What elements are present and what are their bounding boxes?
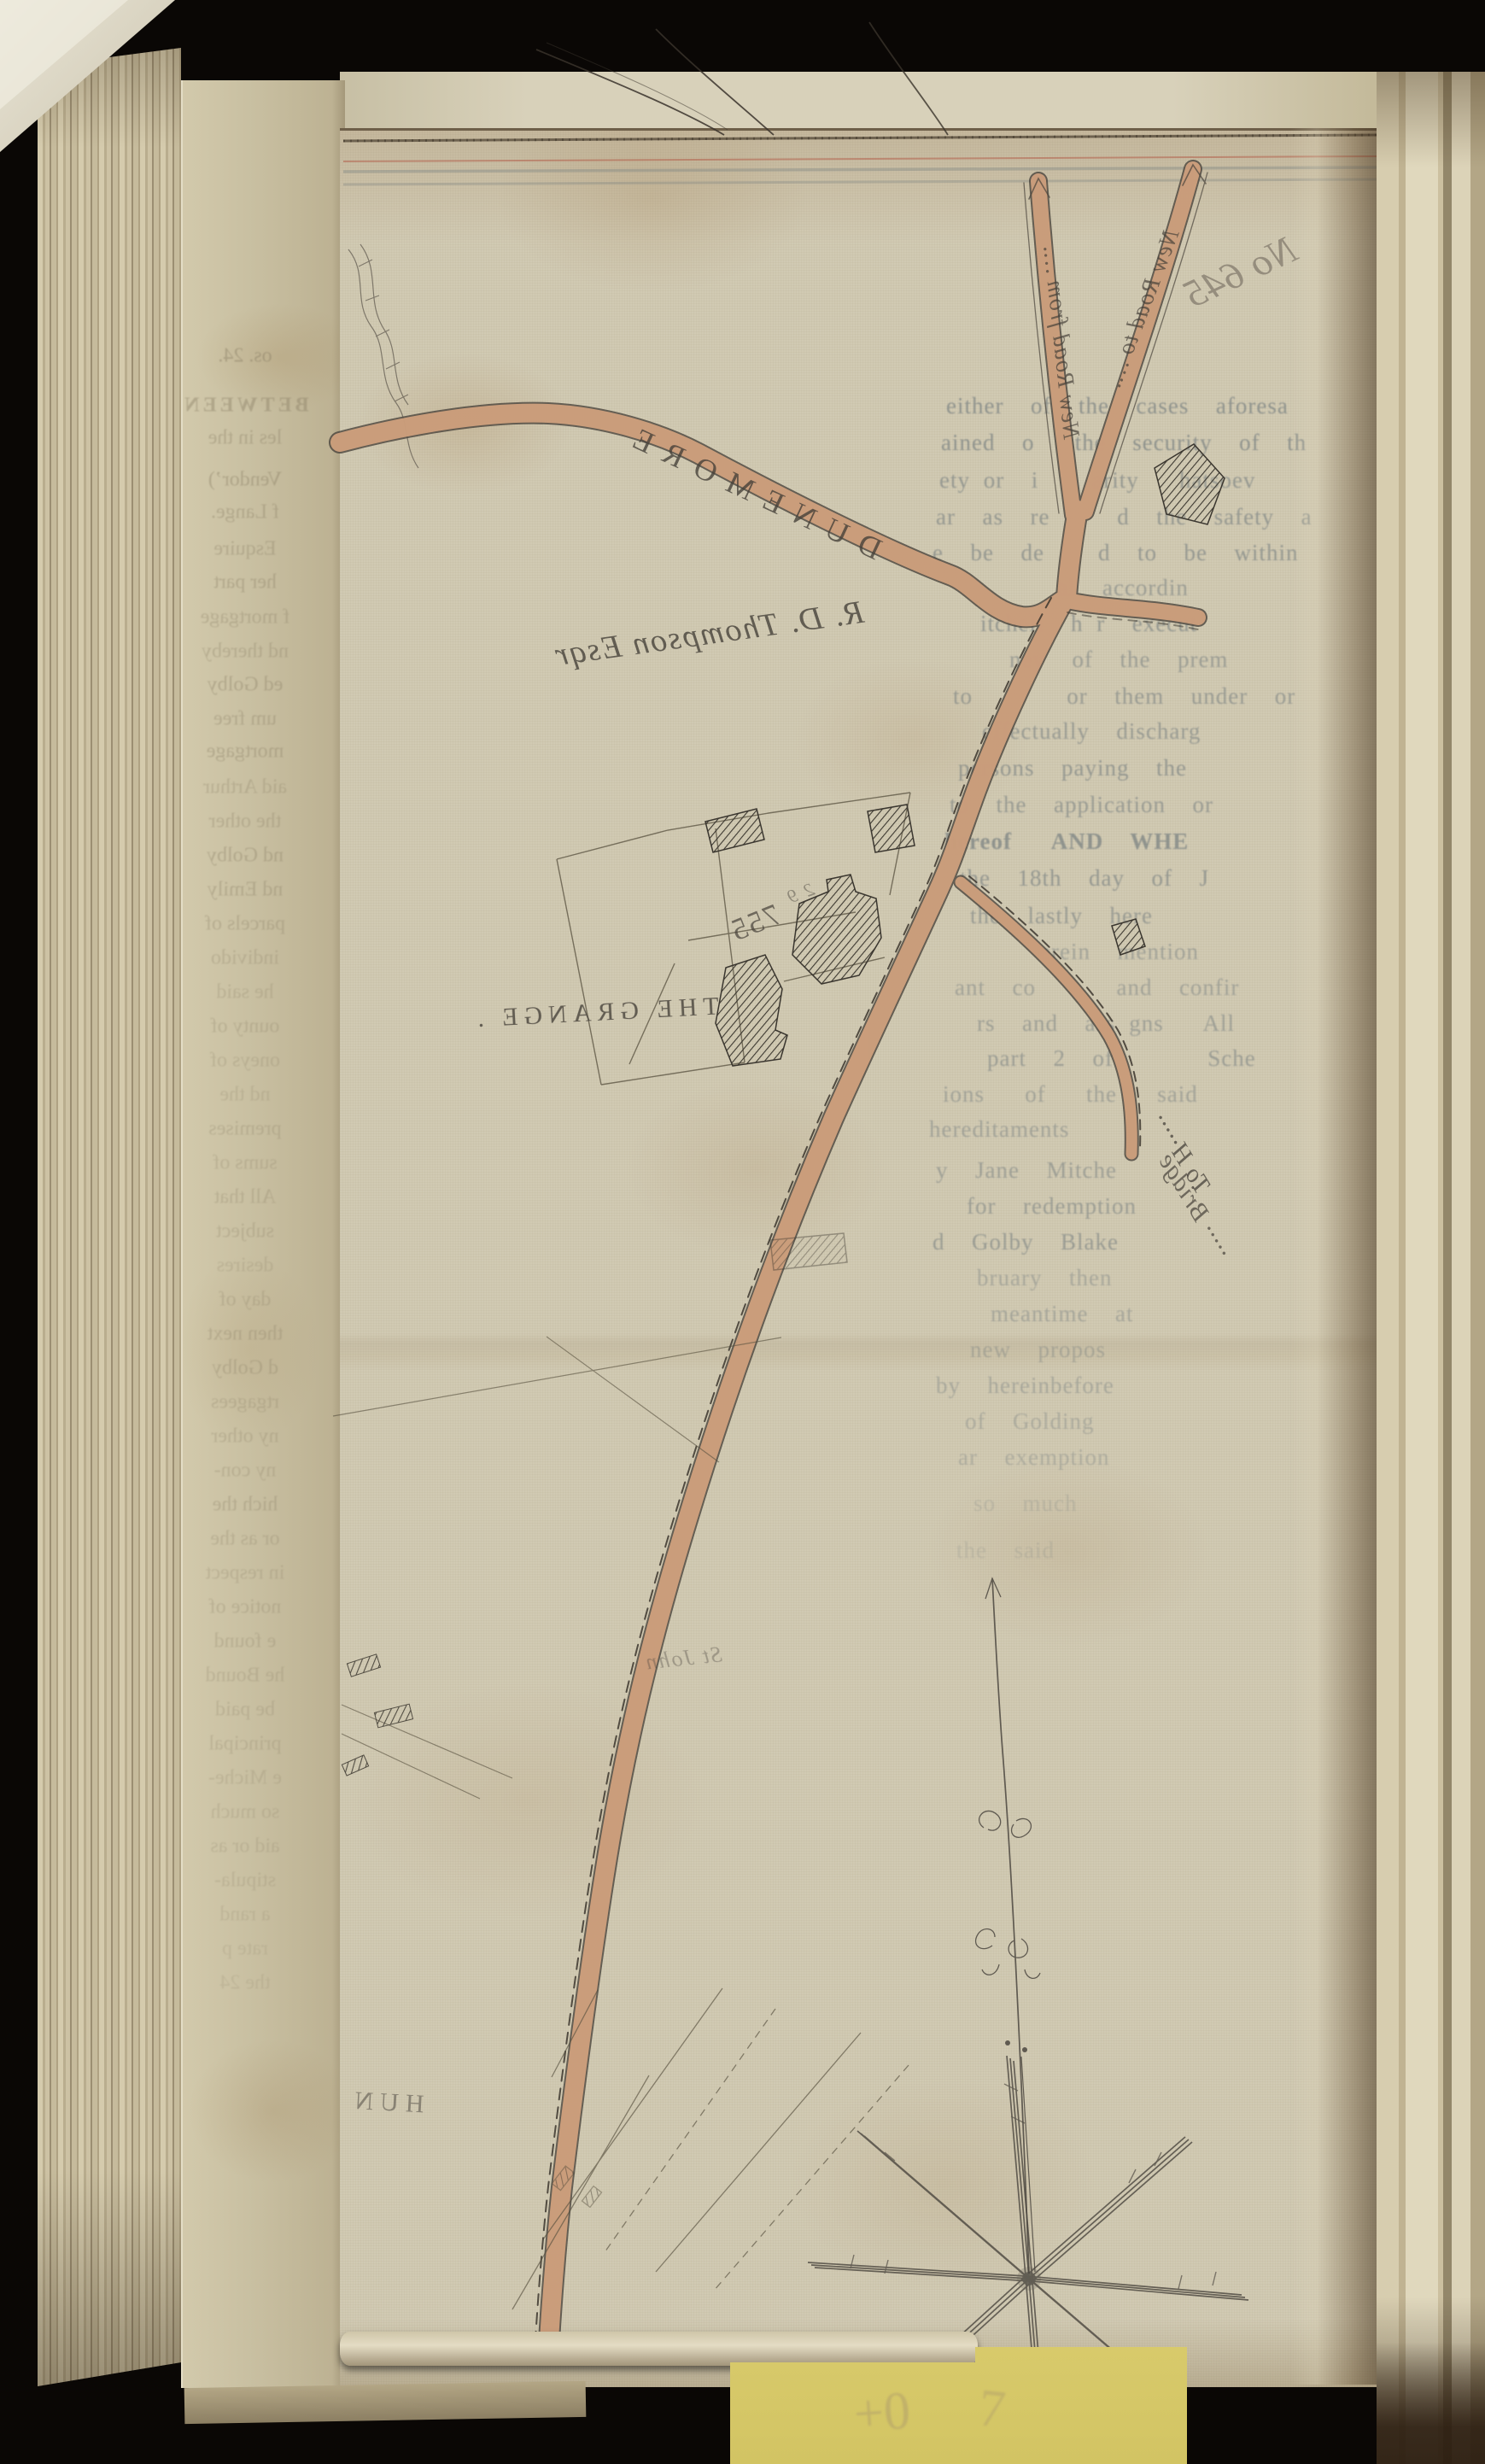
map-label-hun: HUN [348, 2086, 425, 2120]
left-edge-marks [342, 1654, 512, 1799]
compass-needle [976, 1578, 1040, 2274]
sheet-rule-lines [343, 135, 1377, 184]
binding-threads [536, 22, 948, 135]
bottom-page-edge [184, 2381, 587, 2424]
buildings [705, 444, 1225, 1270]
book-page-edges-right [1377, 72, 1485, 2464]
slip-ghost-mark: +0 [852, 2381, 913, 2445]
map-linework [0, 0, 1485, 2464]
bottom-right-stain [1377, 2342, 1485, 2464]
gutter-shadow [1289, 128, 1380, 2385]
map-folded-bottom-edge [340, 2332, 978, 2366]
yellow-slip [730, 2347, 1187, 2464]
archive-photo: either of the cases aforesaained o the s… [0, 0, 1485, 2464]
